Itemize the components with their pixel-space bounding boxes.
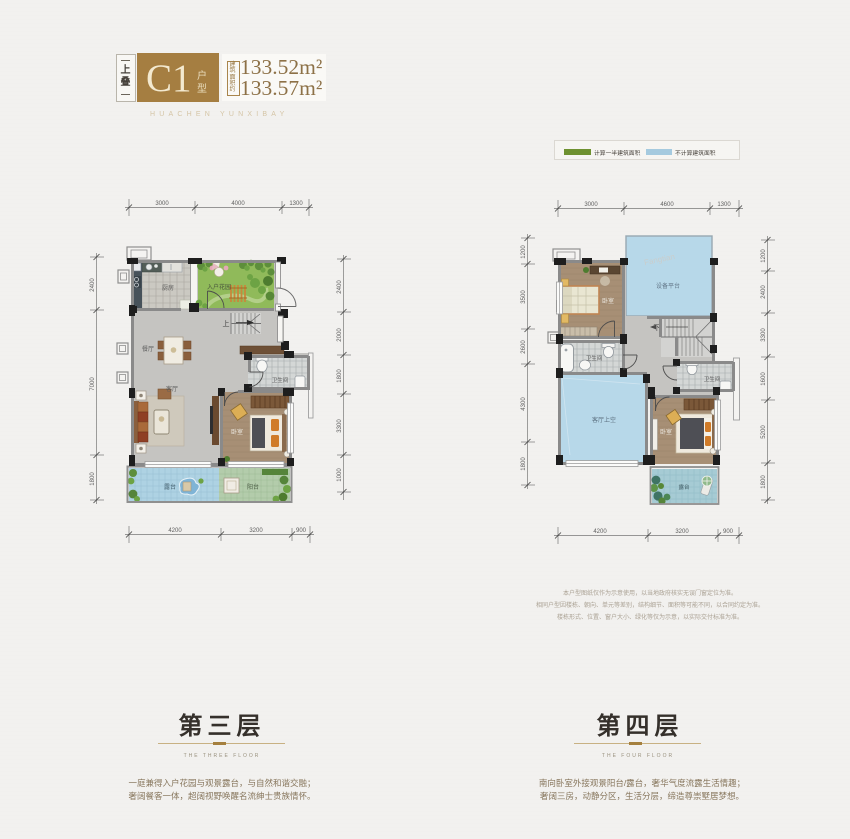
svg-text:厨房: 厨房 [162, 284, 174, 292]
svg-text:入户花园: 入户花园 [207, 283, 231, 291]
svg-text:2400: 2400 [761, 285, 767, 299]
svg-text:设备平台: 设备平台 [656, 282, 680, 290]
svg-text:4300: 4300 [521, 397, 527, 411]
svg-text:900: 900 [723, 529, 734, 535]
svg-text:2400: 2400 [337, 280, 343, 294]
svg-text:3200: 3200 [249, 528, 263, 534]
svg-text:900: 900 [296, 528, 307, 534]
svg-text:阳台: 阳台 [247, 483, 259, 491]
svg-text:露台: 露台 [678, 483, 690, 491]
svg-text:4200: 4200 [168, 528, 182, 534]
svg-text:上: 上 [223, 319, 230, 328]
svg-text:4200: 4200 [593, 529, 607, 535]
svg-text:4000: 4000 [231, 201, 245, 207]
svg-text:3000: 3000 [155, 201, 169, 207]
svg-text:2600: 2600 [521, 340, 527, 354]
svg-text:1000: 1000 [337, 468, 343, 482]
svg-text:2000: 2000 [337, 328, 343, 342]
svg-text:3200: 3200 [675, 529, 689, 535]
svg-text:1800: 1800 [337, 369, 343, 383]
svg-text:4600: 4600 [660, 202, 674, 208]
svg-text:3500: 3500 [521, 290, 527, 304]
svg-text:客厅: 客厅 [166, 385, 178, 393]
svg-text:露台: 露台 [164, 483, 176, 491]
svg-text:3000: 3000 [584, 202, 598, 208]
svg-text:3300: 3300 [337, 419, 343, 433]
svg-text:客厅上空: 客厅上空 [592, 416, 616, 424]
svg-text:1200: 1200 [761, 249, 767, 263]
svg-text:1300: 1300 [717, 202, 731, 208]
svg-text:卧室: 卧室 [231, 428, 243, 436]
svg-text:3300: 3300 [761, 328, 767, 342]
svg-text:1600: 1600 [761, 372, 767, 386]
svg-text:1300: 1300 [289, 201, 303, 207]
svg-text:1800: 1800 [761, 475, 767, 489]
svg-text:卫生间: 卫生间 [704, 375, 721, 383]
svg-text:卧室: 卧室 [660, 428, 672, 436]
svg-text:1200: 1200 [521, 245, 527, 259]
svg-text:5200: 5200 [761, 425, 767, 439]
svg-text:卫生间: 卫生间 [586, 354, 603, 362]
svg-text:餐厅: 餐厅 [142, 345, 154, 353]
svg-text:1800: 1800 [521, 457, 527, 471]
svg-text:7000: 7000 [90, 377, 96, 391]
svg-text:卧室: 卧室 [602, 297, 614, 305]
svg-text:卫生间: 卫生间 [272, 376, 289, 384]
svg-text:2400: 2400 [90, 278, 96, 292]
svg-text:1800: 1800 [90, 472, 96, 486]
